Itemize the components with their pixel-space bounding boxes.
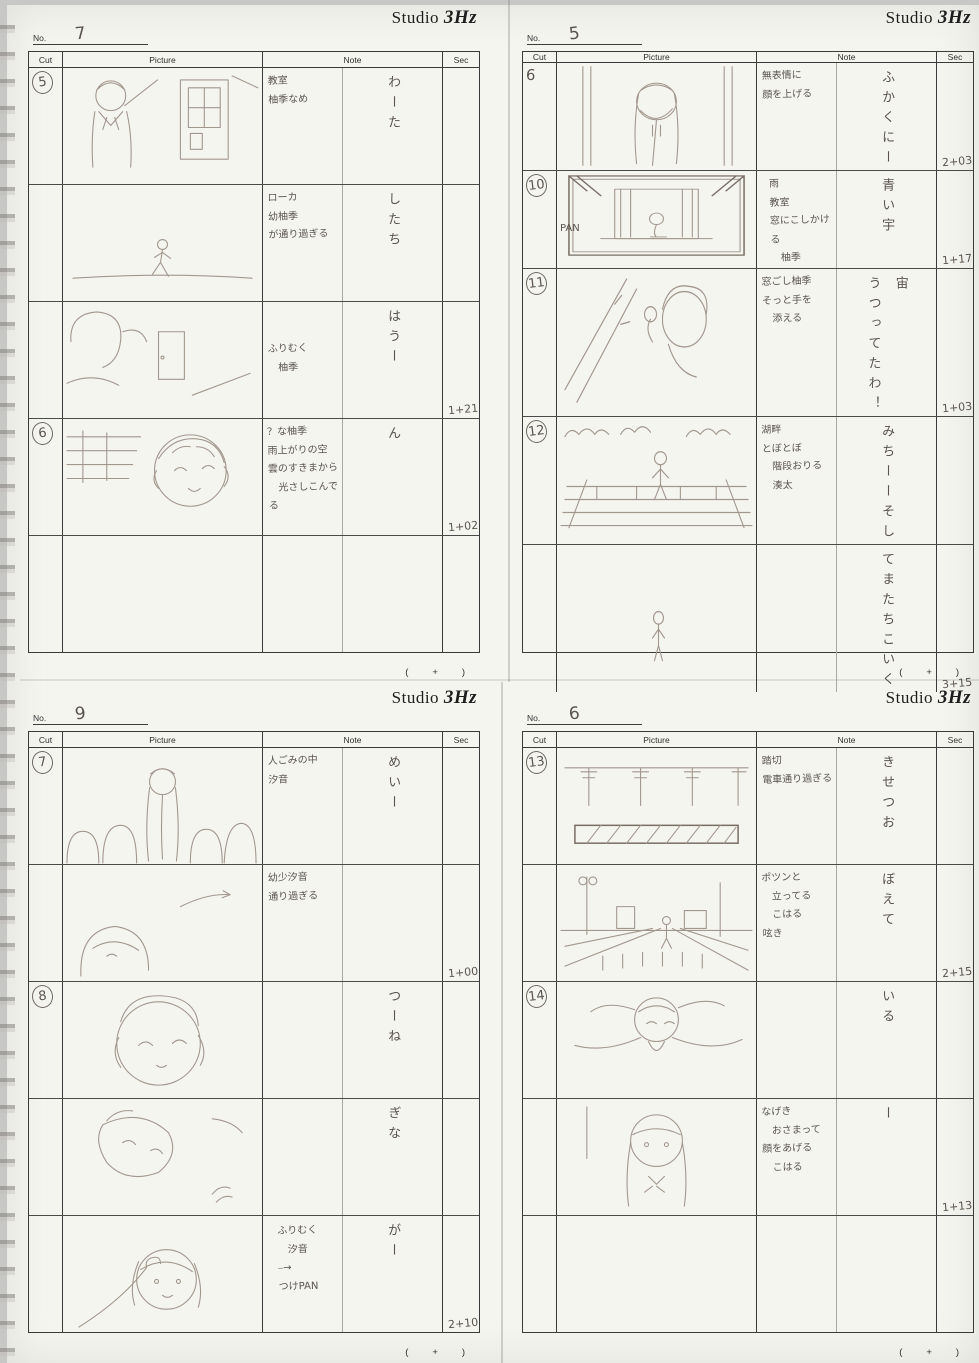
dialogue-text: はうー: [379, 309, 406, 418]
footer-plus: ( + ): [899, 1347, 963, 1358]
note-text: ローカ 幼柚季 が通り過ぎる: [267, 188, 340, 245]
storyboard-sheet-2: Studio 3Hz No. 5 Cut Picture Note Sec 6: [521, 6, 973, 682]
table-row: ふりむく 柚季 はうー 1+21: [29, 302, 479, 419]
picture-sketch-small-figure: [557, 545, 756, 692]
picture-sketch-railroad-crossing: [557, 748, 756, 864]
cut-number: 6: [31, 421, 55, 446]
no-label: No.: [527, 33, 540, 43]
storyboard-sheet-1: Studio 3Hz No. 7 Cut Picture Note Sec 5: [27, 6, 479, 682]
no-label: No.: [33, 33, 46, 43]
picture-sketch-window-sitting: [557, 171, 756, 268]
dialogue-text: がー: [379, 1223, 406, 1332]
page-number-line: No. 9: [33, 708, 148, 725]
page-number: 5: [568, 23, 581, 44]
cut-number: 6: [525, 66, 536, 85]
header-note: Note: [757, 52, 937, 62]
picture-cell: [63, 536, 263, 652]
picture-sketch-girl-head-arrow: [63, 865, 262, 981]
note-text: なげき おさまって 顔をあげる こはる: [761, 1102, 835, 1178]
dialogue-text: いる: [873, 989, 900, 1098]
footer-plus: ( + ): [899, 667, 963, 678]
studio-logo: Studio 3Hz: [392, 7, 477, 29]
picture-cell: [63, 1099, 263, 1215]
storyboard-sheet-3: Studio 3Hz No. 9 Cut Picture Note Sec 7: [27, 686, 479, 1362]
logo-text: Studio: [392, 8, 439, 27]
dialogue-text: わーた: [379, 75, 406, 184]
picture-sketch-classroom-girl: [63, 68, 262, 184]
sec-value: 1+21: [447, 402, 478, 418]
picture-sketch-girl-arm-raised: [63, 1216, 262, 1332]
dialogue-text: ぎな: [379, 1106, 406, 1215]
studio-logo: Studio 3Hz: [886, 7, 971, 29]
table-row: ぎな: [29, 1099, 479, 1216]
header-picture: Picture: [557, 52, 757, 62]
header-cut: Cut: [523, 732, 557, 747]
table-row: 10 PAN 雨 教室 窓にこしかける 柚季 青い宇 1+17: [523, 171, 973, 269]
table-header: Cut Picture Note Sec: [29, 52, 479, 68]
picture-cell: [557, 269, 757, 416]
table-row: ポツンと 立ってる こはる 呟き ぼえて 2+15: [523, 865, 973, 982]
logo-text: Studio: [886, 8, 933, 27]
picture-cell: [557, 748, 757, 864]
note-text: ふりむく 汐音 ⎯→ つけPAN: [277, 1221, 341, 1297]
cut-number: 14: [525, 984, 549, 1009]
sec-value: 1+03: [941, 399, 972, 415]
picture-cell: [63, 68, 263, 184]
studio-logo: Studio 3Hz: [392, 687, 477, 709]
header-cut: Cut: [29, 52, 63, 67]
picture-sketch-crowd-girl: [63, 748, 262, 864]
picture-sketch-hallway-runner: [63, 185, 262, 301]
dialogue-text: ふかくにー: [873, 70, 900, 170]
header-picture: Picture: [557, 732, 757, 747]
storyboard-table: Cut Picture Note Sec 13: [522, 731, 974, 1333]
cut-number: 13: [525, 750, 549, 775]
page-number-line: No. 7: [33, 28, 148, 45]
spiral-binding-edge: [0, 10, 15, 1363]
picture-cell: PAN: [557, 171, 757, 268]
dialogue-text: ぼえて: [873, 872, 900, 981]
note-text: 幼少汐音 通り過ぎる: [268, 868, 341, 907]
picture-cell: [557, 1216, 757, 1332]
table-header: Cut Picture Note Sec: [29, 732, 479, 748]
table-row: 8 つーね: [29, 982, 479, 1099]
header-note: Note: [263, 52, 443, 67]
picture-sketch-street-scene: [557, 865, 756, 981]
note-text: 踏切 電車通り過ぎる: [762, 751, 835, 790]
logo-text: Studio: [392, 688, 439, 707]
storyboard-table: Cut Picture Note Sec 6 無表情に: [522, 51, 974, 653]
page-number: 7: [74, 23, 87, 44]
dialogue-text: したち: [379, 192, 406, 301]
picture-cell: [63, 302, 263, 418]
page-edge-shadow: [501, 682, 503, 1363]
picture-cell: [557, 1099, 757, 1215]
picture-sketch-tilted-face: [63, 1099, 262, 1215]
note-text: 湖畔 とぼとぼ 階段おりる 湊太: [761, 420, 835, 496]
picture-cell: [63, 865, 263, 981]
table-row: [523, 1216, 973, 1332]
picture-sketch-back-view-door: [63, 302, 262, 418]
dialogue-text: つーね: [379, 989, 406, 1098]
picture-cell: [63, 1216, 263, 1332]
dialogue-text: みちーーそし: [873, 424, 900, 544]
table-row: 幼少汐音 通り過ぎる 1+00: [29, 865, 479, 982]
table-row: 5 教室 柚季なめ わーた: [29, 68, 479, 185]
logo-suffix: 3Hz: [938, 7, 971, 28]
note-text: ポツンと 立ってる こはる 呟き: [761, 868, 835, 944]
sec-value: 1+00: [447, 965, 478, 981]
header-sec: Sec: [937, 732, 973, 747]
header-picture: Picture: [63, 52, 263, 67]
cut-number: 7: [31, 750, 55, 775]
cut-number: 5: [31, 70, 55, 95]
picture-sketch-girl-by-window: [557, 269, 756, 416]
table-row: [29, 536, 479, 652]
note-text: 無表情に 顔を上げる: [762, 66, 835, 105]
picture-sketch-girl-bust-front: [557, 1099, 756, 1215]
picture-sketch-smiling-face: [63, 419, 262, 535]
header-cut: Cut: [29, 732, 63, 747]
logo-suffix: 3Hz: [444, 7, 477, 28]
storyboard-table: Cut Picture Note Sec 7: [28, 731, 480, 1333]
page-edge-shadow: [508, 0, 510, 682]
sec-value: 1+17: [941, 251, 972, 267]
header-sec: Sec: [937, 52, 973, 62]
table-row: 11 窓ごし柚季 そっと手を 添える 宙 うつってたわ！ 1+03: [523, 269, 973, 417]
note-text: 人ごみの中 汐音: [268, 751, 341, 790]
dialogue-text: ん: [379, 426, 406, 535]
cut-number: 10: [525, 173, 549, 198]
header-picture: Picture: [63, 732, 263, 747]
page-number: 6: [568, 703, 581, 724]
picture-sketch-lakeside-stairs: [557, 417, 756, 544]
table-row: ふりむく 汐音 ⎯→ つけPAN がー 2+10: [29, 1216, 479, 1332]
header-cut: Cut: [523, 52, 557, 62]
table-header: Cut Picture Note Sec: [523, 732, 973, 748]
sec-value: 2+10: [447, 1316, 478, 1332]
table-row: ローカ 幼柚季 が通り過ぎる したち: [29, 185, 479, 302]
table-row: 6 無表情に 顔を上げる ふかくにー 2+03: [523, 63, 973, 171]
dialogue-text: 宙 うつってたわ！: [859, 276, 914, 416]
table-header: Cut Picture Note Sec: [523, 52, 973, 63]
table-row: なげき おさまって 顔をあげる こはる ー 1+13: [523, 1099, 973, 1216]
footer-plus: ( + ): [405, 667, 469, 678]
cut-number: 12: [525, 418, 549, 443]
picture-sketch-girl-looking-up: [557, 63, 756, 170]
storyboard-sheet-4: Studio 3Hz No. 6 Cut Picture Note Sec 13: [521, 686, 973, 1362]
picture-cell: [63, 419, 263, 535]
sec-value: 1+13: [941, 1199, 972, 1215]
page-number: 9: [74, 703, 87, 724]
header-note: Note: [263, 732, 443, 747]
dialogue-text: 青い宇: [873, 178, 900, 268]
storyboard-table: Cut Picture Note Sec 5: [28, 51, 480, 653]
no-label: No.: [33, 713, 46, 723]
sec-value: 2+03: [941, 154, 972, 170]
dialogue-text: きせつお: [873, 755, 900, 864]
table-row: 7 人ごみの中 汐音 めいー: [29, 748, 479, 865]
dialogue-text: てまたちこいく: [873, 552, 900, 692]
note-text: 窓ごし柚季 そっと手を 添える: [761, 272, 834, 329]
sec-value: 2+15: [941, 965, 972, 981]
picture-sketch-closed-eyes-face: [63, 982, 262, 1098]
note-text: ？な柚季 雨上がりの空 雲のすきまから 光さしこんでる: [267, 422, 341, 516]
dialogue-text: めいー: [379, 755, 406, 864]
footer-plus: ( + ): [405, 1347, 469, 1358]
picture-cell: [557, 982, 757, 1098]
note-text: 教室 柚季なめ: [268, 71, 341, 110]
logo-text: Studio: [886, 688, 933, 707]
studio-logo: Studio 3Hz: [886, 687, 971, 709]
picture-sketch-girl-arms-out: [557, 982, 756, 1098]
page-number-line: No. 5: [527, 28, 642, 45]
cut-number: 11: [525, 270, 549, 295]
pan-annotation: PAN: [560, 223, 580, 234]
picture-cell: [557, 417, 757, 544]
picture-cell: [557, 865, 757, 981]
note-text: ふりむく 柚季: [268, 339, 341, 378]
picture-cell: [63, 982, 263, 1098]
no-label: No.: [527, 713, 540, 723]
note-text: 雨 教室 窓にこしかける 柚季: [769, 174, 835, 268]
dialogue-text: ー: [873, 1106, 900, 1215]
picture-cell: [63, 748, 263, 864]
page-number-line: No. 6: [527, 708, 642, 725]
picture-cell: [557, 63, 757, 170]
picture-cell: [557, 545, 757, 692]
logo-suffix: 3Hz: [938, 687, 971, 708]
picture-cell: [63, 185, 263, 301]
table-row: 14 いる: [523, 982, 973, 1099]
sec-value: 1+02: [447, 519, 478, 535]
header-note: Note: [757, 732, 937, 747]
logo-suffix: 3Hz: [444, 687, 477, 708]
table-row: 6 ？な柚季 雨上がりの空 雲のすきまから 光さしこんでる ん 1+02: [29, 419, 479, 536]
table-row: 13 踏切 電車通り過ぎる きせつお: [523, 748, 973, 865]
header-sec: Sec: [443, 732, 479, 747]
cut-number: 8: [31, 984, 55, 1009]
table-row: 12 湖畔 とぼとぼ 階段おりる 湊太 みちーーそし: [523, 417, 973, 545]
header-sec: Sec: [443, 52, 479, 67]
scanned-storyboard-page: Studio 3Hz No. 7 Cut Picture Note Sec 5: [0, 0, 979, 1363]
